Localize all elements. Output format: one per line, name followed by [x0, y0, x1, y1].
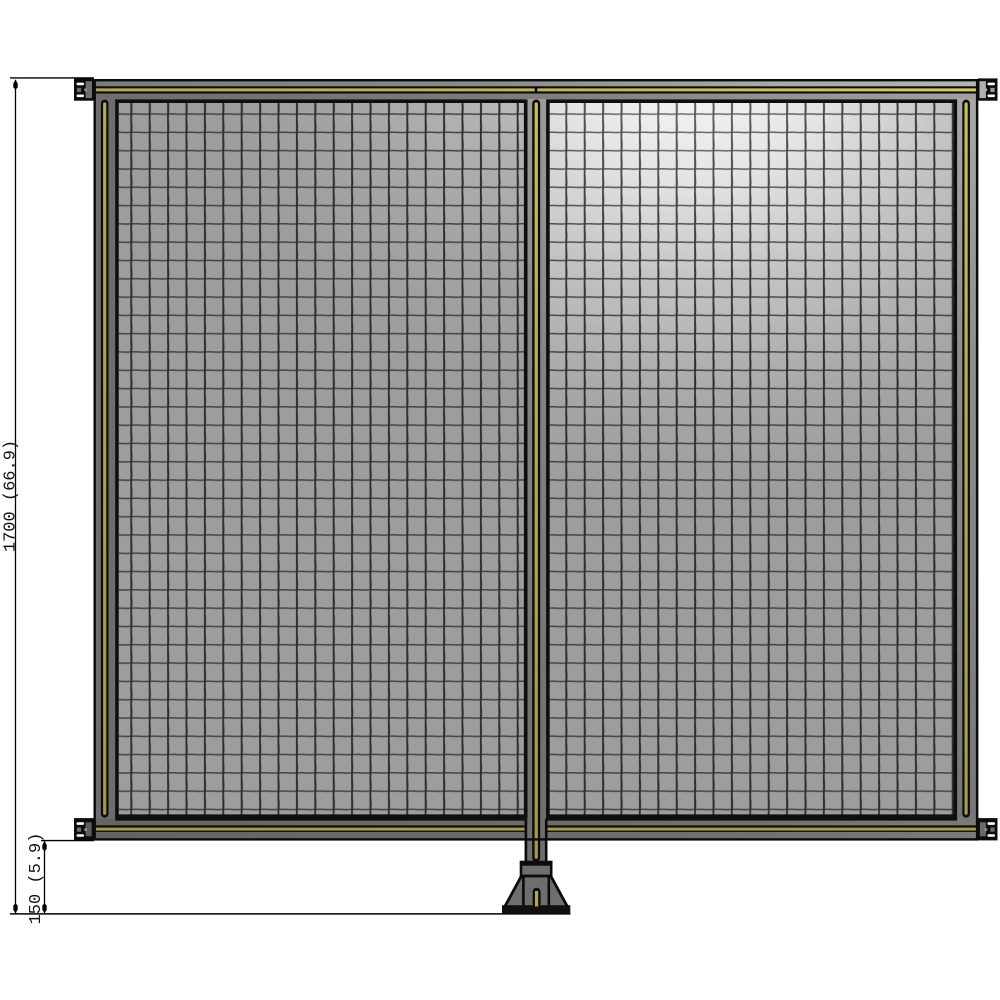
- svg-text:1700 (66.9): 1700 (66.9): [2, 440, 21, 552]
- svg-text:150 (5.9): 150 (5.9): [27, 833, 46, 925]
